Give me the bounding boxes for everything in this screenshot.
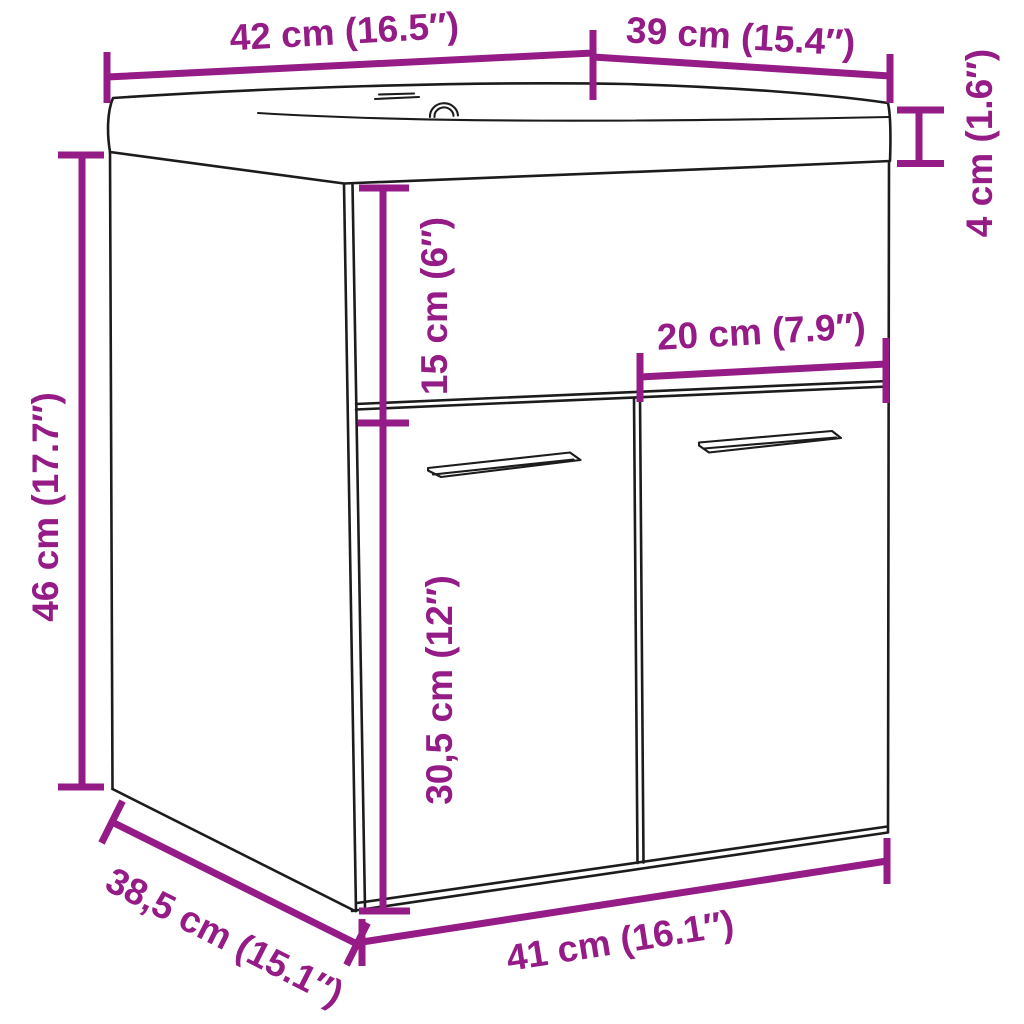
dim-line-front-sections <box>358 188 410 911</box>
sink-outline <box>108 83 890 183</box>
label-basin-height: 4 cm (1.6″) <box>959 49 1000 237</box>
label-door-height: 30,5 cm (12″) <box>419 575 460 805</box>
dimension-diagram: 42 cm (16.5″) 39 cm (15.4″) 4 cm (1.6″) … <box>0 0 1024 1024</box>
label-right-door-width: 20 cm (7.9″) <box>656 305 867 358</box>
label-base-depth: 38,5 cm (15.1″) <box>99 859 350 1014</box>
label-top-width: 42 cm (16.5″) <box>229 5 461 59</box>
label-cabinet-height: 46 cm (17.7″) <box>25 392 66 622</box>
right-front-edge <box>888 162 889 832</box>
faucet-hole-icon <box>430 103 458 117</box>
basin-rim-line <box>258 113 889 121</box>
overflow-slot <box>375 94 419 100</box>
cabinet-line-art: 42 cm (16.5″) 39 cm (15.4″) 4 cm (1.6″) … <box>0 0 1024 1024</box>
dim-bracket-basin-height <box>897 110 944 164</box>
sink-basin <box>108 83 890 183</box>
door-gap <box>634 398 644 864</box>
cabinet-body <box>110 152 889 911</box>
door-bottom-edge <box>357 827 888 904</box>
left-door-handle <box>428 453 581 478</box>
right-door-handle <box>699 431 841 453</box>
label-upper-section-height: 15 cm (6″) <box>414 217 455 395</box>
dimension-lines <box>58 30 944 966</box>
left-back-edge <box>110 152 113 789</box>
label-top-depth: 39 cm (15.4″) <box>625 9 857 64</box>
